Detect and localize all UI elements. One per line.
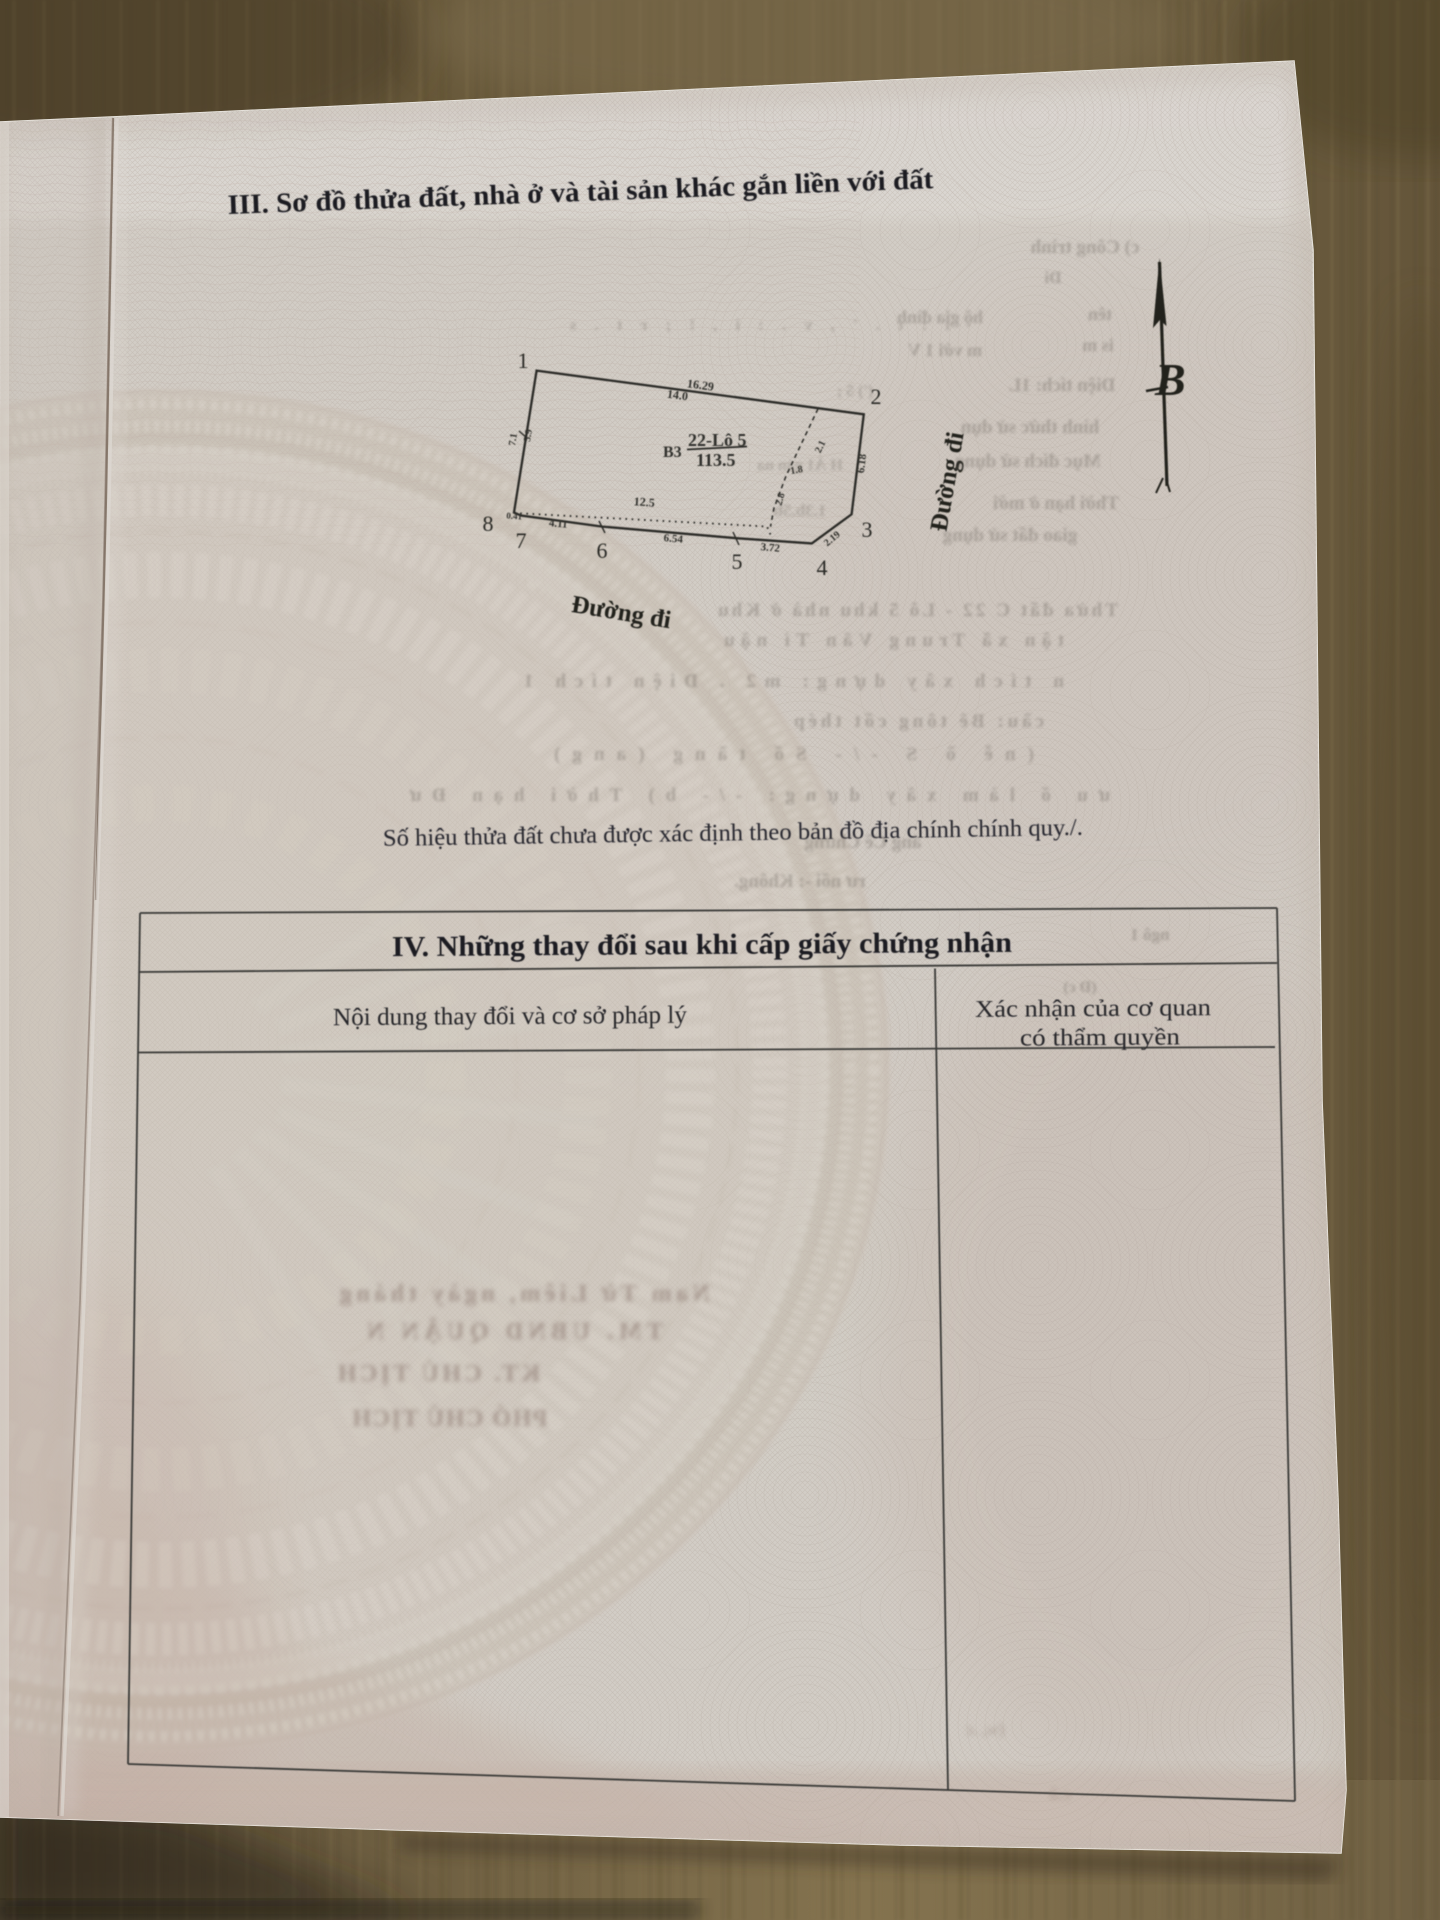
svg-text:6.18: 6.18 xyxy=(855,453,869,474)
svg-text:B: B xyxy=(1154,354,1186,405)
svg-text:Di: Di xyxy=(1044,268,1061,287)
svg-text:có thẩm quyền: có thẩm quyền xyxy=(1020,1024,1180,1051)
svg-text:4.11: 4.11 xyxy=(548,517,568,531)
svg-text:giao đất sử dụng: giao đất sử dụng xyxy=(942,525,1077,546)
svg-text:Diện tích: 1L: Diện tích: 1L xyxy=(1009,375,1116,396)
svg-text:c) Công trình: c) Công trình xyxy=(1030,237,1139,258)
svg-text:c.ô: c.ô xyxy=(1049,1784,1071,1804)
svg-text:Thời hạn ở mới: Thời hạn ở mới xyxy=(993,493,1119,514)
svg-text:ảng Cề Chưng: ảng Cề Chưng xyxy=(804,832,921,853)
svg-text:5.9: 5.9 xyxy=(522,429,535,443)
svg-text:1.3b.5b: 1.3b.5b xyxy=(774,501,827,520)
svg-text:3.72: 3.72 xyxy=(760,541,781,555)
svg-text:ngô 1: ngô 1 xyxy=(1130,925,1169,944)
svg-text:KT. CHỦ TỊCH: KT. CHỦ TỊCH xyxy=(338,1361,540,1387)
svg-text:Nam Từ Liêm, ngày tháng: Nam Từ Liêm, ngày tháng xyxy=(340,1281,710,1307)
svg-text:12.5: 12.5 xyxy=(633,494,655,509)
svg-text:is m: is m xyxy=(1082,335,1114,355)
svg-text:(Đ c): (Đ c) xyxy=(1063,979,1096,996)
svg-text:7: 7 xyxy=(516,528,527,553)
svg-text:Mục đích sử dụng: Mục đích sử dụng xyxy=(954,451,1101,472)
svg-text:6.54: 6.54 xyxy=(663,532,684,546)
svg-text:B3: B3 xyxy=(663,444,682,461)
svg-text:8: 8 xyxy=(483,511,494,536)
svg-text:Thửa đất C 22 - Lô 5 khu nhà ở: Thửa đất C 22 - Lô 5 khu nhà ở Khu xyxy=(718,600,1118,621)
svg-text:7.1: 7.1 xyxy=(507,433,520,447)
svg-text:rư nổi -: Không.: rư nổi -: Không. xyxy=(734,871,866,892)
svg-text:IV. Những thay đổi sau khi cấp: IV. Những thay đổi sau khi cấp giấy chứn… xyxy=(392,927,1012,963)
svg-text:(') 5 ;: (') 5 ; xyxy=(837,383,873,400)
svg-text:hình thức sử dụn: hình thức sử dụn xyxy=(960,417,1099,438)
svg-text:Xác nhận của cơ quan: Xác nhận của cơ quan xyxy=(975,995,1211,1023)
svg-text:0.41: 0.41 xyxy=(506,510,523,521)
svg-text:113.5: 113.5 xyxy=(696,450,736,470)
svg-text:5: 5 xyxy=(732,549,743,574)
svg-text:(w, .c: (w, .c xyxy=(965,1719,1005,1740)
svg-text:PHÓ CHỦ TỊCH: PHÓ CHỦ TỊCH xyxy=(352,1405,547,1432)
svg-text:1: 1 xyxy=(518,348,529,373)
svg-text:6: 6 xyxy=(597,538,608,563)
svg-text:4: 4 xyxy=(817,555,828,580)
svg-text:m với 1 V: m với 1 V xyxy=(908,340,982,360)
svg-text:3: 3 xyxy=(862,517,873,542)
svg-text:Nội dung thay đổi và cơ sở phá: Nội dung thay đổi và cơ sở pháp lý xyxy=(333,1002,688,1031)
svg-text:tên: tên xyxy=(1088,304,1112,324)
svg-text:H Ả1 gản na: H Ả1 gản na xyxy=(757,455,843,474)
svg-text:hộ gia đình: hộ gia đình xyxy=(897,307,983,327)
svg-text:14.0: 14.0 xyxy=(666,387,689,404)
